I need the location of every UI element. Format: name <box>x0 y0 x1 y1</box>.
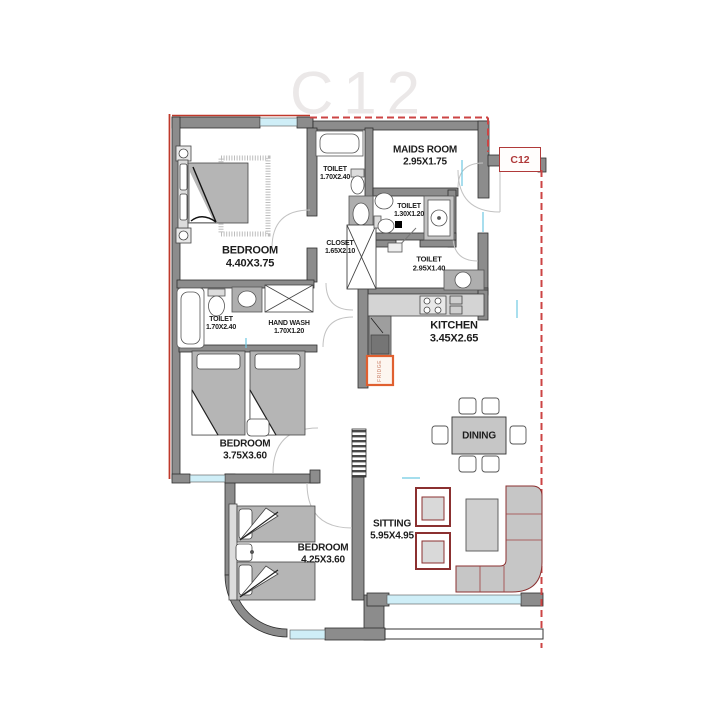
unit-entry-label-text: C12 <box>510 154 529 166</box>
room-dims: 2.95X1.75 <box>393 156 457 168</box>
chair <box>459 456 476 472</box>
service-shaft <box>352 429 366 477</box>
label-toilet-maids: TOILET 1.30X1.20 <box>394 203 424 219</box>
bedroom2-furniture <box>192 351 305 436</box>
room-name: TOILET <box>397 203 421 210</box>
closet-unit <box>347 225 376 289</box>
room-name: TOILET <box>416 254 441 263</box>
chair <box>432 426 448 444</box>
pillow <box>180 194 187 220</box>
nightstand <box>236 544 252 561</box>
room-name: DINING <box>462 430 496 441</box>
room-name: TOILET <box>323 166 347 173</box>
room-dims: 3.75X3.60 <box>220 450 271 462</box>
label-kitchen: KITCHEN 3.45X2.65 <box>430 319 478 344</box>
coffee-table <box>466 499 498 551</box>
label-fridge: FRIDGE <box>377 360 383 382</box>
chair <box>482 456 499 472</box>
room-name: BEDROOM <box>298 543 349 554</box>
master-bedroom-furniture <box>176 146 268 243</box>
guest-toilet-fixtures <box>177 285 313 348</box>
label-bedroom3: BEDROOM 4.25X3.60 <box>298 543 349 566</box>
room-dims: 1.70X2.40 <box>320 174 350 182</box>
room-name: MAIDS ROOM <box>393 145 457 156</box>
room-name: SITTING <box>373 519 411 530</box>
chair <box>482 398 499 414</box>
unit-watermark: C12 <box>290 59 430 128</box>
room-name: BEDROOM <box>222 244 278 256</box>
label-toilet-master: TOILET 1.70X2.40 <box>320 166 350 182</box>
room-dims: 1.70X1.20 <box>268 328 309 336</box>
master-toilet-fixtures <box>316 131 373 234</box>
sitting-furniture <box>416 486 542 592</box>
stool <box>247 419 269 436</box>
room-dims: 4.25X3.60 <box>298 554 349 566</box>
room-dims: 1.65X2.10 <box>325 248 355 256</box>
floor-plan: C12 C12 MAIDS ROOM 2.95X1.75 TOILET 1.70… <box>0 0 720 720</box>
chair <box>510 426 526 444</box>
label-toilet-guest: TOILET 1.70X2.40 <box>206 316 236 332</box>
room-name: CLOSET <box>326 240 353 247</box>
room-dims: 4.40X3.75 <box>222 257 278 270</box>
sink <box>375 193 393 209</box>
wc <box>208 289 225 296</box>
label-sitting: SITTING 5.95X4.95 <box>370 519 414 542</box>
label-dining: DINING <box>462 430 496 442</box>
label-toilet-common: TOILET 2.95X1.40 <box>413 255 445 272</box>
unit-entry-label: C12 <box>499 147 541 172</box>
pillow <box>180 164 187 190</box>
room-dims: 3.45X2.65 <box>430 332 478 345</box>
label-master-bedroom: BEDROOM 4.40X3.75 <box>222 244 278 269</box>
room-dims: 5.95X4.95 <box>370 530 414 542</box>
room-dims: 1.70X2.40 <box>206 324 236 332</box>
room-dims: 2.95X1.40 <box>413 264 445 273</box>
label-maids-room: MAIDS ROOM 2.95X1.75 <box>393 145 457 168</box>
label-hand-wash: HAND WASH 1.70X1.20 <box>268 320 309 336</box>
room-name: HAND WASH <box>268 320 309 327</box>
pillow <box>255 354 300 369</box>
room-dims: 1.30X1.20 <box>394 211 424 219</box>
chair <box>459 398 476 414</box>
balcony-railing <box>385 629 543 639</box>
room-name: TOILET <box>209 316 233 323</box>
pillow <box>197 354 240 369</box>
room-name: BEDROOM <box>220 439 271 450</box>
label-closet: CLOSET 1.65X2.10 <box>325 240 355 256</box>
wc <box>388 243 402 252</box>
room-name: KITCHEN <box>430 319 478 331</box>
label-bedroom2: BEDROOM 3.75X3.60 <box>220 439 271 462</box>
